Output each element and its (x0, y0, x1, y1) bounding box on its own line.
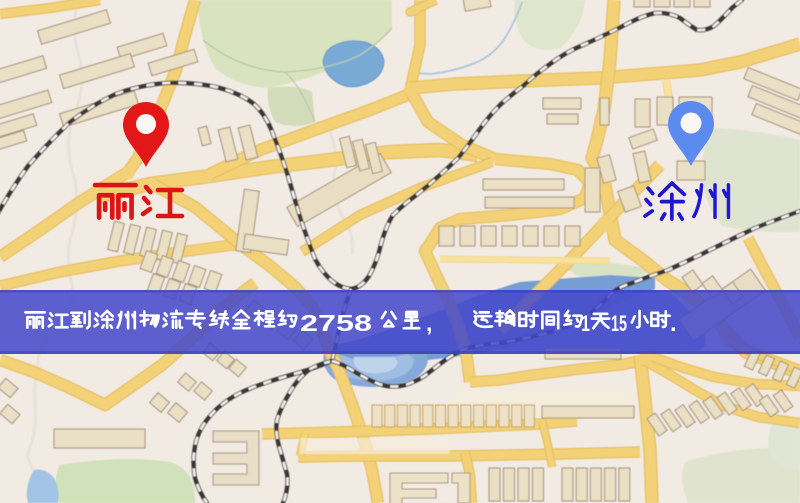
svg-text:2758: 2758 (300, 310, 372, 336)
svg-text:.: . (670, 310, 677, 337)
svg-text:,: , (426, 310, 432, 336)
svg-text:15: 15 (611, 311, 627, 336)
svg-text:1: 1 (581, 311, 590, 336)
